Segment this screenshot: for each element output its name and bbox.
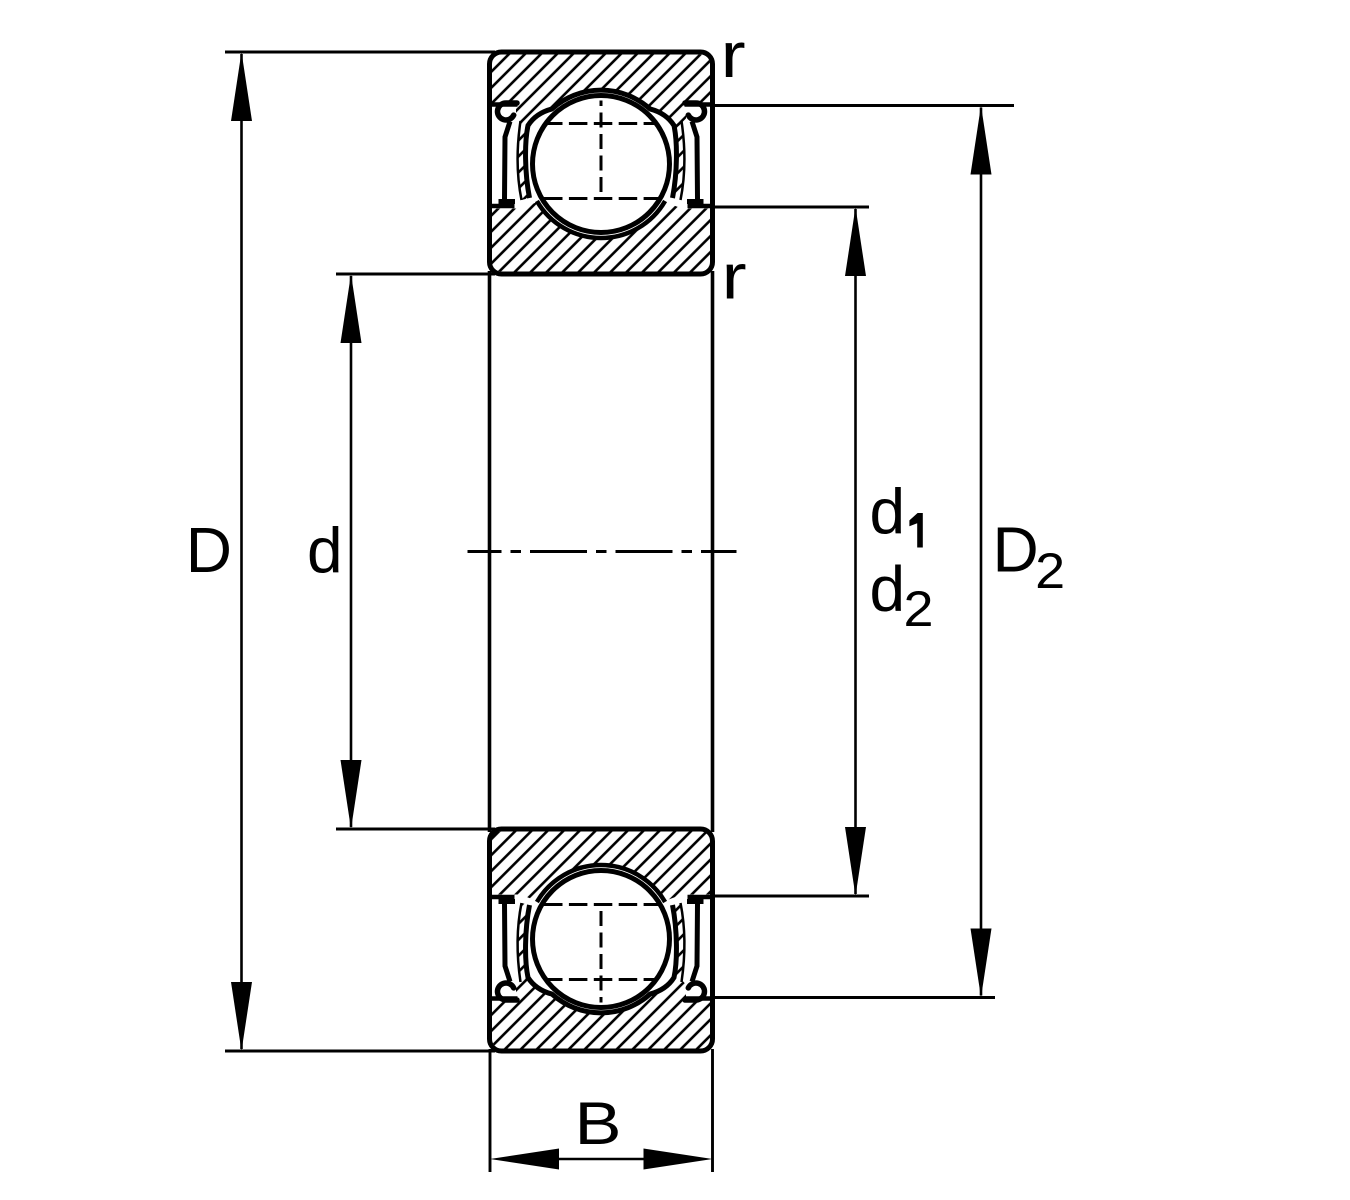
- svg-text:d: d: [870, 553, 906, 625]
- svg-text:r: r: [721, 19, 746, 91]
- svg-text:2: 2: [904, 581, 934, 637]
- svg-text:B: B: [575, 1090, 622, 1157]
- svg-text:r: r: [722, 241, 747, 313]
- svg-text:D: D: [186, 514, 232, 586]
- svg-text:d: d: [307, 515, 343, 587]
- svg-text:d: d: [870, 476, 906, 548]
- svg-text:D: D: [993, 514, 1039, 586]
- svg-text:2: 2: [1035, 543, 1065, 599]
